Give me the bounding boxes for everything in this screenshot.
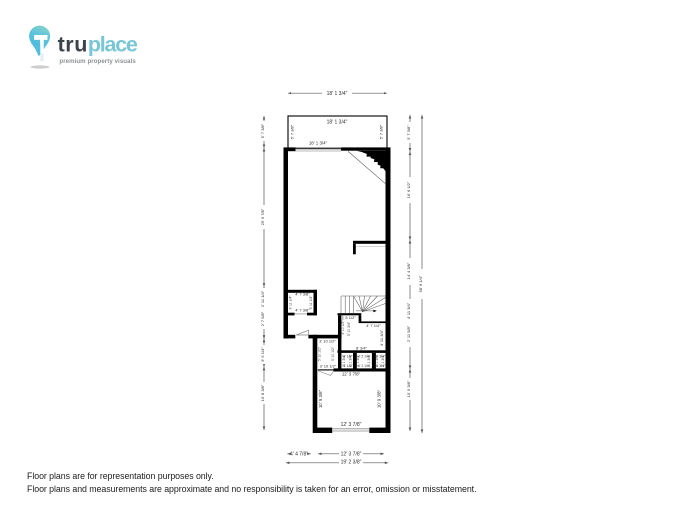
svg-text:5' 10 1/2": 5' 10 1/2"	[331, 346, 335, 361]
svg-text:10' 9 3/8": 10' 9 3/8"	[406, 380, 411, 397]
svg-text:18' 1 3/4": 18' 1 3/4"	[327, 120, 348, 126]
svg-text:5' 10 1/2": 5' 10 1/2"	[318, 346, 322, 361]
svg-text:12' 3 7/8": 12' 3 7/8"	[341, 422, 362, 428]
svg-text:4' 7 1/4": 4' 7 1/4"	[366, 323, 381, 328]
svg-text:5' 7 3/8": 5' 7 3/8"	[290, 124, 295, 139]
svg-text:10' 8 3/8": 10' 8 3/8"	[260, 384, 265, 401]
svg-text:19' 2 3/8": 19' 2 3/8"	[341, 460, 362, 466]
svg-text:2' 1 3/4": 2' 1 3/4"	[367, 354, 371, 367]
svg-text:2' 1 3/4": 2' 1 3/4"	[356, 354, 360, 367]
svg-text:2' 11 1/4": 2' 11 1/4"	[260, 290, 265, 307]
svg-text:4' 11 3/4": 4' 11 3/4"	[406, 302, 411, 319]
svg-text:3' 11 1/4": 3' 11 1/4"	[309, 295, 313, 310]
svg-text:10' 9 3/8": 10' 9 3/8"	[318, 389, 323, 408]
svg-text:18' 1 3/4": 18' 1 3/4"	[309, 141, 328, 146]
svg-text:3' 10 1/2": 3' 10 1/2"	[320, 363, 337, 368]
svg-text:16' 6 1/2": 16' 6 1/2"	[406, 181, 411, 198]
svg-text:58' 6 1/4": 58' 6 1/4"	[418, 275, 423, 292]
svg-text:4' 7 3/8": 4' 7 3/8"	[295, 292, 310, 297]
svg-text:2' 1 3/4": 2' 1 3/4"	[381, 354, 385, 367]
svg-text:3' 10 1/2": 3' 10 1/2"	[319, 338, 336, 343]
svg-text:5 1/2": 5 1/2"	[345, 315, 356, 320]
svg-text:8' 3/4": 8' 3/4"	[356, 346, 368, 351]
svg-text:18' 1 3/4": 18' 1 3/4"	[327, 91, 348, 97]
svg-text:9' 5 1/4": 9' 5 1/4"	[260, 347, 265, 362]
svg-text:2' 1 3/4": 2' 1 3/4"	[342, 354, 346, 367]
svg-text:2' 1 3/4": 2' 1 3/4"	[375, 354, 379, 367]
svg-text:4' 11 3/4": 4' 11 3/4"	[379, 329, 384, 346]
svg-text:10' 9 3/8": 10' 9 3/8"	[376, 389, 381, 408]
svg-text:3' 11 1/4": 3' 11 1/4"	[288, 295, 292, 310]
svg-text:4' 7 3/8": 4' 7 3/8"	[295, 308, 310, 313]
svg-text:2' 11 5/8": 2' 11 5/8"	[406, 325, 411, 342]
svg-text:5' 10 1/2": 5' 10 1/2"	[341, 320, 345, 335]
svg-text:2' 1 3/4": 2' 1 3/4"	[348, 354, 352, 367]
svg-text:5' 7 3/8": 5' 7 3/8"	[379, 124, 384, 139]
svg-text:5' 7 3/8": 5' 7 3/8"	[406, 125, 411, 140]
svg-text:14' 4 3/8": 14' 4 3/8"	[406, 262, 411, 279]
svg-text:5' 7 3/8": 5' 7 3/8"	[260, 123, 265, 138]
svg-text:12' 3 7/8": 12' 3 7/8"	[342, 371, 361, 376]
svg-text:2' 7 5/8": 2' 7 5/8"	[260, 311, 265, 326]
svg-text:5' 10 3/4": 5' 10 3/4"	[347, 321, 351, 336]
svg-text:4' 4 7/8": 4' 4 7/8"	[290, 452, 308, 458]
svg-text:25' 9 7/8": 25' 9 7/8"	[260, 208, 265, 225]
svg-text:12' 3 7/8": 12' 3 7/8"	[341, 452, 362, 458]
